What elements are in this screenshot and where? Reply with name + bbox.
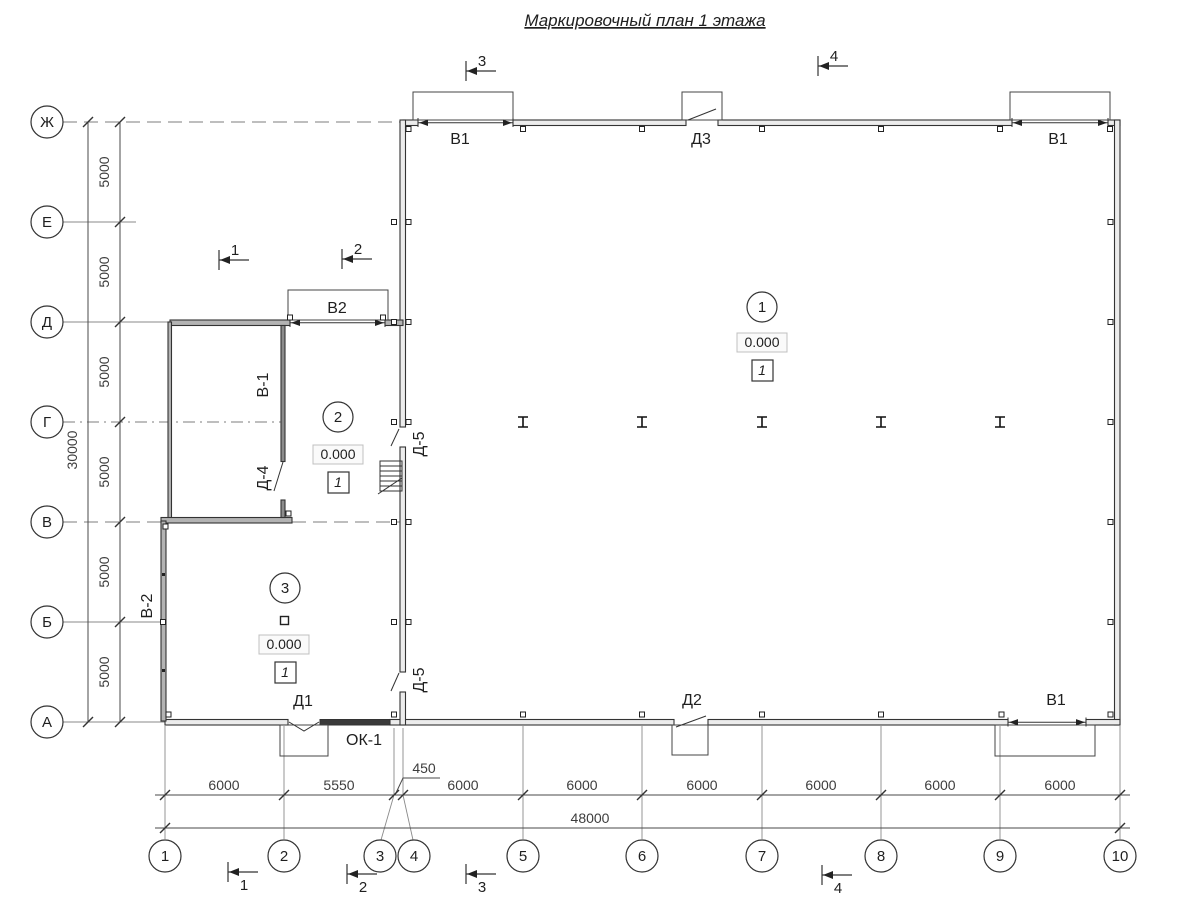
axis-col-1: 1 bbox=[161, 848, 169, 865]
svg-text:3: 3 bbox=[478, 53, 486, 70]
axis-col-2: 2 bbox=[280, 848, 288, 865]
room-marker-1: 1 0.000 1 bbox=[737, 292, 787, 381]
section-marks: 3 4 1 2 1 bbox=[219, 48, 852, 897]
axis-col-4: 4 bbox=[410, 848, 418, 865]
dim-bottom-4: 6000 bbox=[447, 777, 478, 793]
mark-door-d2: Д2 bbox=[682, 692, 702, 709]
mark-door-d1: Д1 bbox=[293, 693, 313, 710]
axis-col-6: 6 bbox=[638, 848, 646, 865]
gate-openings bbox=[290, 118, 1108, 727]
dim-left-3: 5000 bbox=[96, 356, 112, 387]
dim-bottom-total: 48000 bbox=[571, 810, 610, 826]
section-mark-2-mid: 2 bbox=[342, 241, 372, 269]
axis-row-e: Е bbox=[42, 214, 52, 231]
room-1-finish-type: 1 bbox=[758, 362, 766, 378]
svg-text:2: 2 bbox=[354, 241, 362, 258]
interior-partitions bbox=[281, 326, 285, 518]
svg-text:3: 3 bbox=[478, 879, 486, 896]
dim-left-total: 30000 bbox=[64, 430, 80, 469]
axis-row-v: В bbox=[42, 514, 52, 531]
room-2-number: 2 bbox=[334, 409, 342, 426]
axis-col-10: 10 bbox=[1112, 848, 1129, 865]
dim-left-6: 5000 bbox=[96, 656, 112, 687]
dim-bottom-8: 6000 bbox=[924, 777, 955, 793]
dim-bottom-7: 6000 bbox=[805, 777, 836, 793]
drawing-page: Маркировочный план 1 этажа bbox=[0, 0, 1200, 900]
room-3-finish-type: 1 bbox=[281, 664, 289, 680]
axis-row-b: Б bbox=[42, 614, 52, 631]
mark-door-d3-top: Д3 bbox=[691, 131, 711, 148]
section-mark-4-bottom: 4 bbox=[822, 865, 852, 897]
section-mark-3-top: 3 bbox=[466, 53, 496, 81]
dim-bottom-9: 6000 bbox=[1044, 777, 1075, 793]
room-3-number: 3 bbox=[281, 580, 289, 597]
section-mark-3-bottom: 3 bbox=[466, 864, 496, 896]
dim-bottom-1: 6000 bbox=[208, 777, 239, 793]
axis-col-8: 8 bbox=[877, 848, 885, 865]
dim-bottom-3-leader: 450 bbox=[412, 760, 436, 776]
svg-text:2: 2 bbox=[359, 879, 367, 896]
mark-gate-v1-bottom-right: В1 bbox=[1046, 692, 1066, 709]
dim-left-5: 5000 bbox=[96, 556, 112, 587]
mark-door-d-5-upper: Д-5 bbox=[411, 431, 428, 456]
mark-gate-v1-top-right: В1 bbox=[1048, 131, 1068, 148]
axis-row-a: А bbox=[42, 714, 52, 731]
room-marker-3: 3 0.000 1 bbox=[259, 573, 309, 683]
section-mark-1-bottom: 1 bbox=[228, 862, 258, 894]
ibeam-columns bbox=[518, 417, 1005, 427]
dimension-ticks bbox=[83, 117, 1125, 833]
element-marks: В1 Д3 В1 В2 В-1 Д-4 Д-5 Д-5 В-2 Д1 ОК-1 … bbox=[139, 131, 1068, 749]
exterior-walls bbox=[161, 120, 1120, 725]
section-mark-4-top: 4 bbox=[818, 48, 848, 76]
axis-row-zh: Ж bbox=[40, 114, 54, 131]
floor-plan-svg: Маркировочный план 1 этажа bbox=[0, 0, 1200, 900]
axis-bubbles-rows: Ж Е Д Г В Б А bbox=[31, 106, 63, 738]
staircase bbox=[378, 461, 402, 494]
dim-left-1: 5000 bbox=[96, 156, 112, 187]
axis-col-7: 7 bbox=[758, 848, 766, 865]
svg-text:1: 1 bbox=[231, 242, 239, 259]
axis-col-3: 3 bbox=[376, 848, 384, 865]
axis-row-d: Д bbox=[42, 314, 52, 331]
svg-text:1: 1 bbox=[240, 877, 248, 894]
svg-text:4: 4 bbox=[834, 880, 842, 897]
dim-bottom-6: 6000 bbox=[686, 777, 717, 793]
room-2-finish-type: 1 bbox=[334, 474, 342, 490]
room-1-elevation: 0.000 bbox=[744, 334, 779, 350]
mark-door-d-5-lower: Д-5 bbox=[411, 667, 428, 692]
column-squares bbox=[161, 127, 1114, 718]
dim-left-4: 5000 bbox=[96, 456, 112, 487]
mark-gate-v2: В2 bbox=[327, 300, 347, 317]
dim-left-2: 5000 bbox=[96, 256, 112, 287]
mark-gate-v-1: В-1 bbox=[255, 372, 272, 397]
dim-bottom-5: 6000 bbox=[566, 777, 597, 793]
section-mark-1-mid: 1 bbox=[219, 242, 249, 270]
svg-text:4: 4 bbox=[830, 48, 838, 65]
room-marker-2: 2 0.000 1 bbox=[313, 402, 363, 493]
mark-gate-v1-top-left: В1 bbox=[450, 131, 470, 148]
mark-door-d-4: Д-4 bbox=[255, 465, 272, 490]
axis-bubbles-columns: 1 2 3 4 5 6 7 8 9 10 bbox=[149, 840, 1136, 872]
axis-col-5: 5 bbox=[519, 848, 527, 865]
axis-col-9: 9 bbox=[996, 848, 1004, 865]
dim-bottom-2: 5550 bbox=[323, 777, 354, 793]
mark-window-ok-1: ОК-1 bbox=[346, 732, 382, 749]
axis-grid-lines bbox=[63, 122, 1120, 840]
mark-gate-v-2: В-2 bbox=[139, 593, 156, 618]
room-1-number: 1 bbox=[758, 299, 766, 316]
room-2-elevation: 0.000 bbox=[320, 446, 355, 462]
axis-row-g: Г bbox=[43, 414, 51, 431]
drawing-title: Маркировочный план 1 этажа bbox=[524, 11, 765, 30]
room-3-elevation: 0.000 bbox=[266, 636, 301, 652]
